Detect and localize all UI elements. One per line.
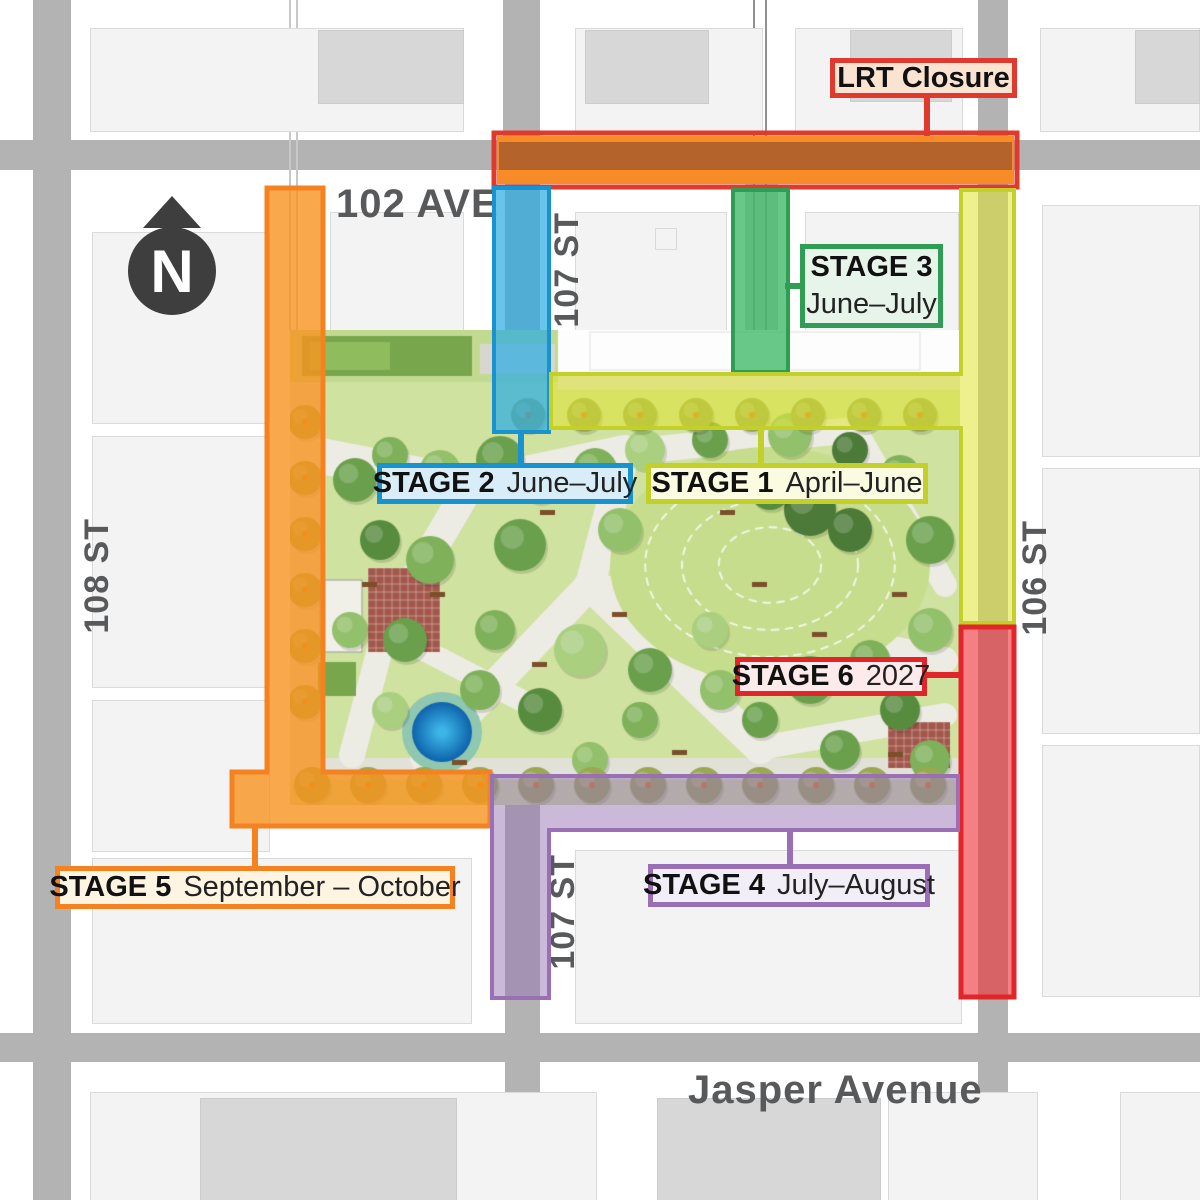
stage4-title: STAGE 4 — [643, 869, 765, 902]
north-label: N — [150, 237, 193, 306]
street-label-102-ave: 102 AVE — [336, 184, 499, 224]
stage5-callout: STAGE 5 September – October — [55, 866, 455, 909]
park-illustration — [290, 330, 960, 805]
stage5-dates: September – October — [183, 871, 460, 904]
stage4-dates: July–August — [777, 869, 935, 902]
road-107-st-north — [503, 0, 540, 140]
stage1-dates: April–June — [785, 467, 922, 500]
building — [1120, 1092, 1200, 1200]
building — [1042, 745, 1200, 997]
building — [1135, 30, 1200, 104]
building — [655, 228, 677, 250]
road-107-st-mid — [505, 170, 540, 332]
lrt-closure-callout: LRT Closure — [830, 58, 1017, 98]
stage3-title: STAGE 3 — [811, 251, 933, 284]
stage4-callout: STAGE 4 July–August — [648, 864, 930, 907]
stage2-dates: June–July — [507, 467, 638, 500]
stage2-title: STAGE 2 — [373, 467, 495, 500]
stage3-callout: STAGE 3 June–July — [800, 244, 943, 328]
building — [92, 700, 270, 852]
lrt-connector — [924, 96, 930, 136]
stage2-connector — [518, 430, 524, 465]
street-label-107-st-south: 107 ST — [546, 854, 580, 970]
lrt-closure-title: LRT Closure — [837, 62, 1009, 95]
stage1-connector — [758, 428, 764, 465]
building — [1042, 205, 1200, 457]
construction-staging-map: N 102 AVE 107 ST 108 ST 106 ST 107 ST Ja… — [0, 0, 1200, 1200]
stage2-callout: STAGE 2 June–July — [377, 463, 633, 504]
stage1-callout: STAGE 1 April–June — [646, 463, 928, 504]
building — [585, 30, 709, 104]
north-arrow-icon — [143, 196, 201, 228]
stage5-connector — [252, 826, 258, 868]
building — [330, 212, 464, 332]
stage6-callout: STAGE 6 2027 — [735, 657, 927, 696]
building — [657, 1098, 881, 1200]
road-102-ave — [0, 140, 1200, 170]
street-label-108-st: 108 ST — [80, 518, 114, 634]
building — [575, 212, 727, 339]
road-108-st — [33, 0, 71, 1200]
street-label-jasper-avenue: Jasper Avenue — [688, 1070, 983, 1110]
road-jasper-ave — [0, 1033, 1200, 1062]
stage6-dates: 2027 — [866, 660, 931, 693]
building — [200, 1098, 457, 1200]
street-label-106-st: 106 ST — [1018, 520, 1052, 636]
building — [1042, 468, 1200, 734]
north-badge: N — [128, 227, 216, 315]
stage3-dates: June–July — [806, 288, 937, 321]
building — [318, 30, 464, 104]
stage4-connector — [787, 828, 793, 866]
stage6-connector — [925, 672, 963, 678]
stage1-title: STAGE 1 — [652, 467, 774, 500]
stage6-title: STAGE 6 — [732, 660, 854, 693]
building — [92, 436, 270, 688]
stage5-title: STAGE 5 — [49, 871, 171, 904]
road-106-st — [978, 0, 1008, 1200]
street-label-107-st-north: 107 ST — [550, 212, 584, 328]
